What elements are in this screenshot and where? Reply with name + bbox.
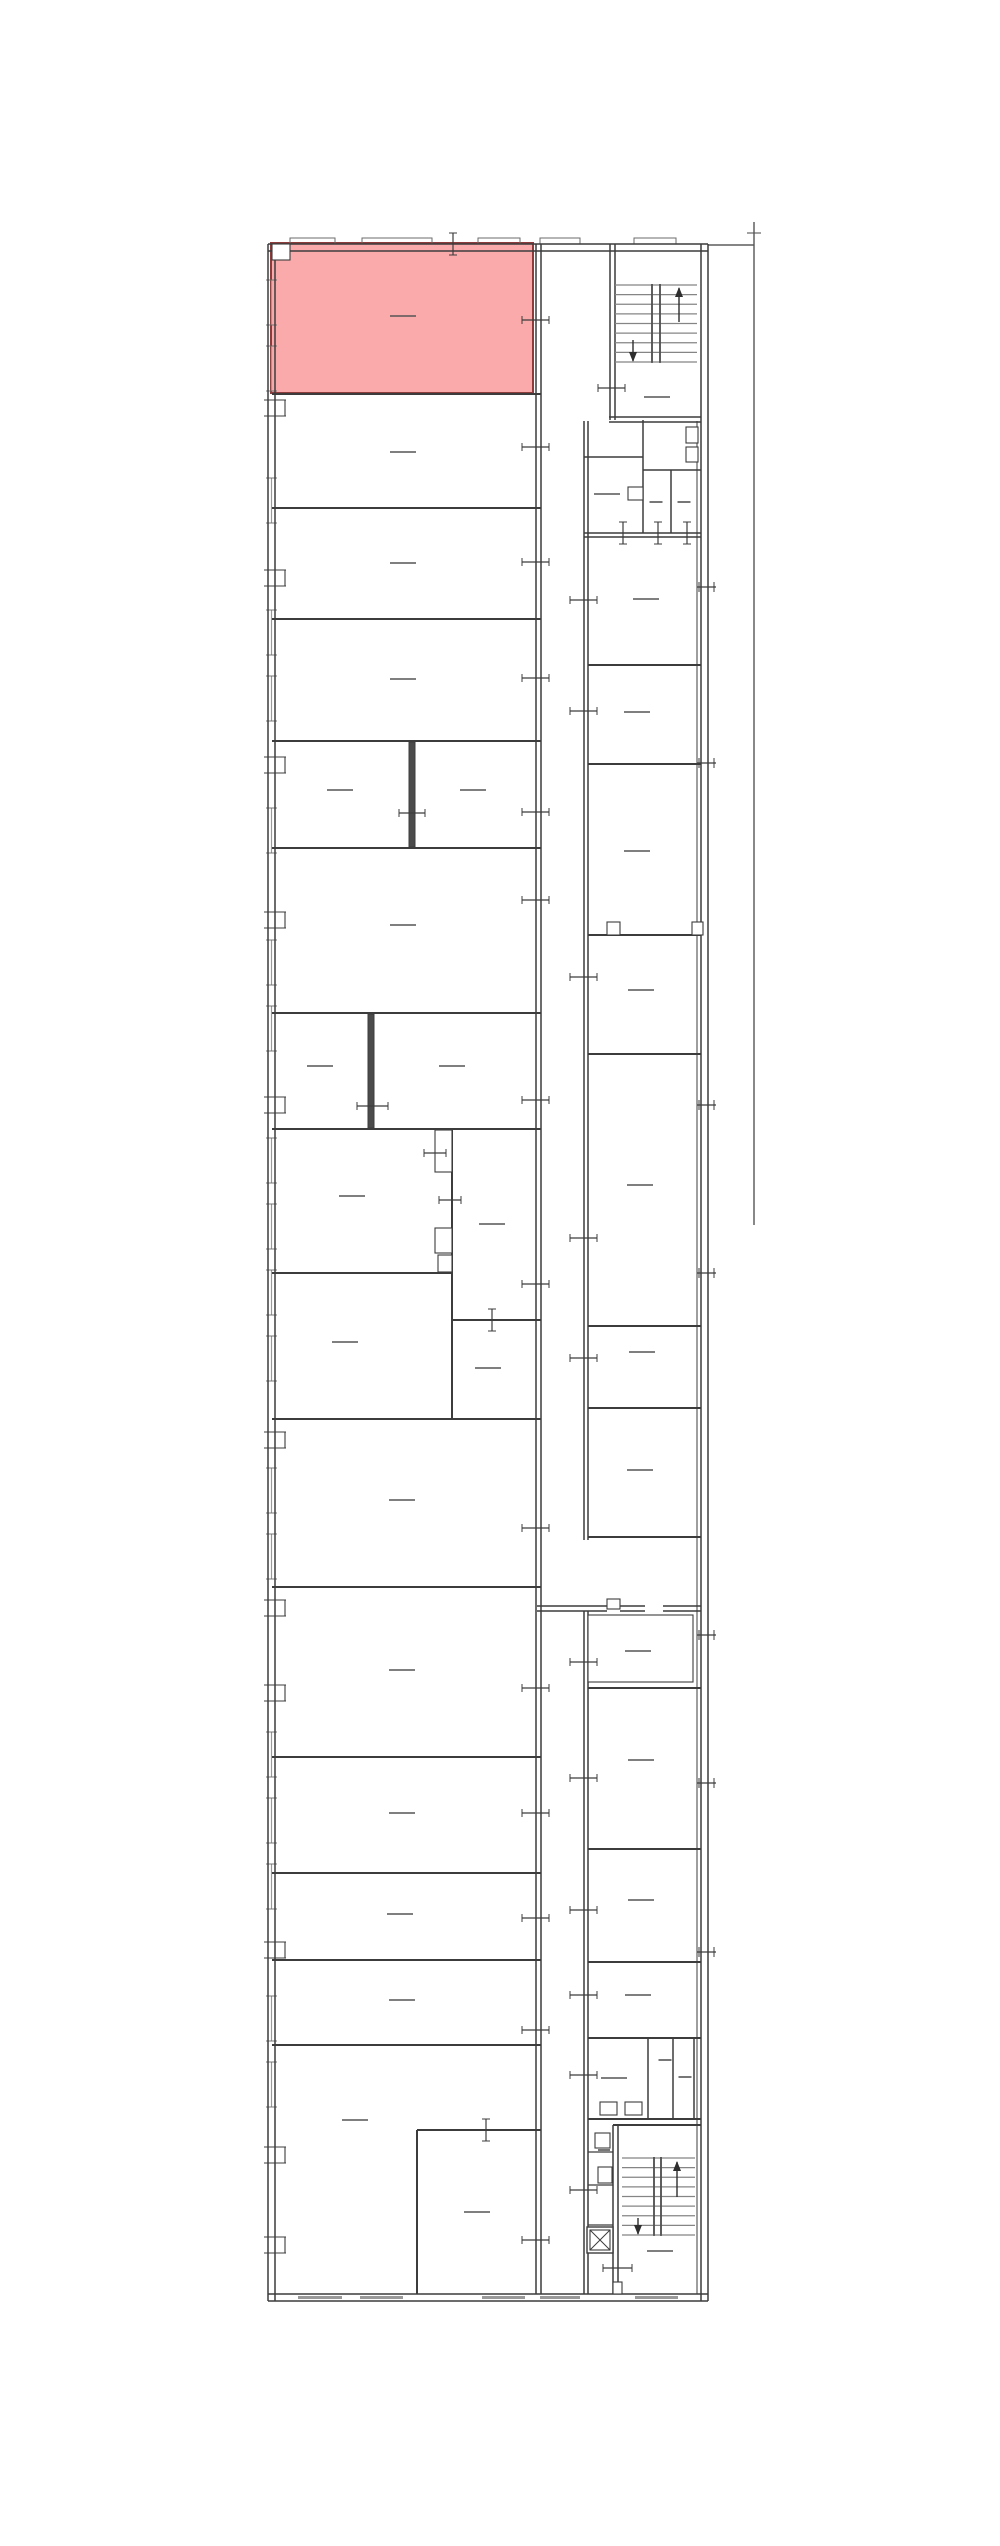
stair-up-arrow-icon xyxy=(673,2161,681,2171)
highlighted-room xyxy=(271,243,533,393)
fixtures-and-closets xyxy=(272,244,703,2294)
elevator xyxy=(587,2227,613,2253)
door-ticks xyxy=(264,233,716,2272)
stair-down-arrow-icon xyxy=(634,2225,642,2235)
floor-plan-svg xyxy=(0,0,1000,2546)
stairs-top xyxy=(615,284,697,363)
highlighted-room-rect[interactable] xyxy=(271,243,533,393)
floor-plan-canvas xyxy=(0,0,1000,2546)
thick-partitions xyxy=(368,742,415,1128)
stair-up-arrow-icon xyxy=(675,287,683,297)
stair-down-arrow-icon xyxy=(629,352,637,362)
reference-line xyxy=(747,222,761,1225)
windows xyxy=(266,238,678,2298)
walls xyxy=(268,244,754,2301)
stairs-bottom xyxy=(622,2157,695,2236)
